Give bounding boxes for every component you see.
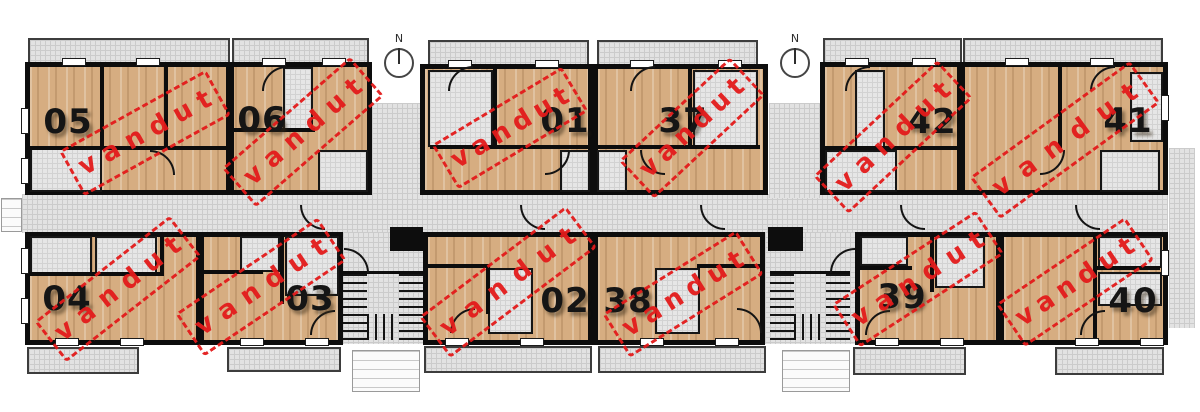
wall: [27, 146, 229, 150]
entrance-steps: [1, 198, 22, 232]
service-room: [597, 150, 627, 192]
balcony: [227, 347, 341, 372]
window: [718, 60, 742, 68]
window: [715, 338, 739, 346]
wall: [164, 64, 168, 150]
window: [1161, 95, 1169, 121]
service-room: [825, 150, 897, 192]
stair-flight: [343, 274, 367, 340]
wall: [768, 227, 803, 251]
window: [262, 58, 286, 66]
service-room: [488, 268, 533, 334]
service-room: [1098, 236, 1162, 268]
service-room: [30, 236, 92, 274]
wall: [1058, 64, 1062, 148]
corridor: [1169, 148, 1195, 328]
wall: [486, 264, 490, 314]
window: [845, 58, 869, 66]
stair-flight: [367, 314, 399, 340]
window: [21, 158, 29, 184]
unit-number-label[interactable]: 42: [907, 102, 956, 142]
north-label: N: [791, 33, 799, 44]
window: [240, 338, 264, 346]
wall: [160, 232, 164, 276]
window: [136, 58, 160, 66]
service-room: [655, 268, 700, 334]
stair-flight: [794, 314, 826, 340]
wall: [390, 227, 423, 251]
window: [520, 338, 544, 346]
unit-number-label[interactable]: 02: [540, 281, 589, 321]
window: [445, 338, 469, 346]
service-room: [30, 146, 102, 192]
unit-number-label[interactable]: 04: [42, 279, 91, 319]
service-room: [935, 236, 985, 288]
entrance-steps: [352, 350, 420, 392]
window: [1140, 338, 1164, 346]
wall: [1095, 266, 1160, 270]
window: [875, 338, 899, 346]
unit-number-label[interactable]: 03: [285, 279, 334, 319]
plan-canvas: N N 05vandut06vandut01vandut37vandut42va…: [0, 0, 1200, 412]
window: [120, 338, 144, 346]
north-indicator: N: [780, 48, 810, 78]
wall: [280, 234, 284, 304]
window: [1005, 58, 1029, 66]
wall: [196, 232, 204, 345]
window: [1075, 338, 1099, 346]
wall: [430, 145, 593, 149]
window: [21, 108, 29, 134]
service-room: [1100, 150, 1160, 192]
window: [940, 338, 964, 346]
window: [55, 338, 79, 346]
wall: [697, 264, 763, 268]
corridor: [372, 103, 420, 198]
unit-number-label[interactable]: 41: [1103, 101, 1152, 141]
window: [1161, 250, 1169, 276]
window: [62, 58, 86, 66]
window: [535, 60, 559, 68]
corridor: [22, 194, 1168, 233]
unit-number-label[interactable]: 38: [603, 281, 652, 321]
stair-flight: [399, 274, 423, 340]
service-room: [860, 236, 908, 266]
north-label: N: [395, 33, 403, 44]
wall: [203, 270, 263, 274]
unit-number-label[interactable]: 39: [877, 277, 926, 317]
service-room: [283, 67, 313, 131]
service-room: [95, 236, 157, 274]
service-room: [240, 236, 280, 272]
wall: [930, 234, 934, 292]
balcony: [1055, 347, 1164, 375]
balcony: [424, 346, 592, 373]
stair-flight: [770, 274, 794, 340]
wall: [857, 266, 912, 270]
window: [305, 338, 329, 346]
entrance-steps: [782, 350, 850, 392]
wall: [493, 66, 497, 149]
stair-flight: [826, 274, 850, 340]
service-room: [318, 150, 368, 192]
unit-number-label[interactable]: 01: [540, 101, 589, 141]
wall: [597, 145, 760, 149]
balcony: [853, 347, 966, 375]
wall: [823, 146, 958, 150]
window: [21, 248, 29, 274]
corridor: [769, 103, 820, 198]
unit-number-label[interactable]: 40: [1108, 281, 1157, 321]
window: [1090, 58, 1114, 66]
unit-number-label[interactable]: 06: [237, 100, 286, 140]
wall: [996, 232, 1004, 345]
wall: [100, 64, 104, 150]
wall: [27, 272, 162, 276]
north-indicator: N: [384, 48, 414, 78]
wall: [425, 264, 488, 268]
north-needle-icon: [398, 48, 400, 64]
window: [912, 58, 936, 66]
balcony: [27, 347, 139, 374]
window: [21, 298, 29, 324]
unit-number-label[interactable]: 05: [43, 102, 92, 142]
unit-number-label[interactable]: 37: [658, 101, 707, 141]
north-needle-icon: [794, 48, 796, 64]
wall: [957, 62, 965, 195]
window: [640, 338, 664, 346]
balcony: [598, 346, 766, 373]
window: [322, 58, 346, 66]
